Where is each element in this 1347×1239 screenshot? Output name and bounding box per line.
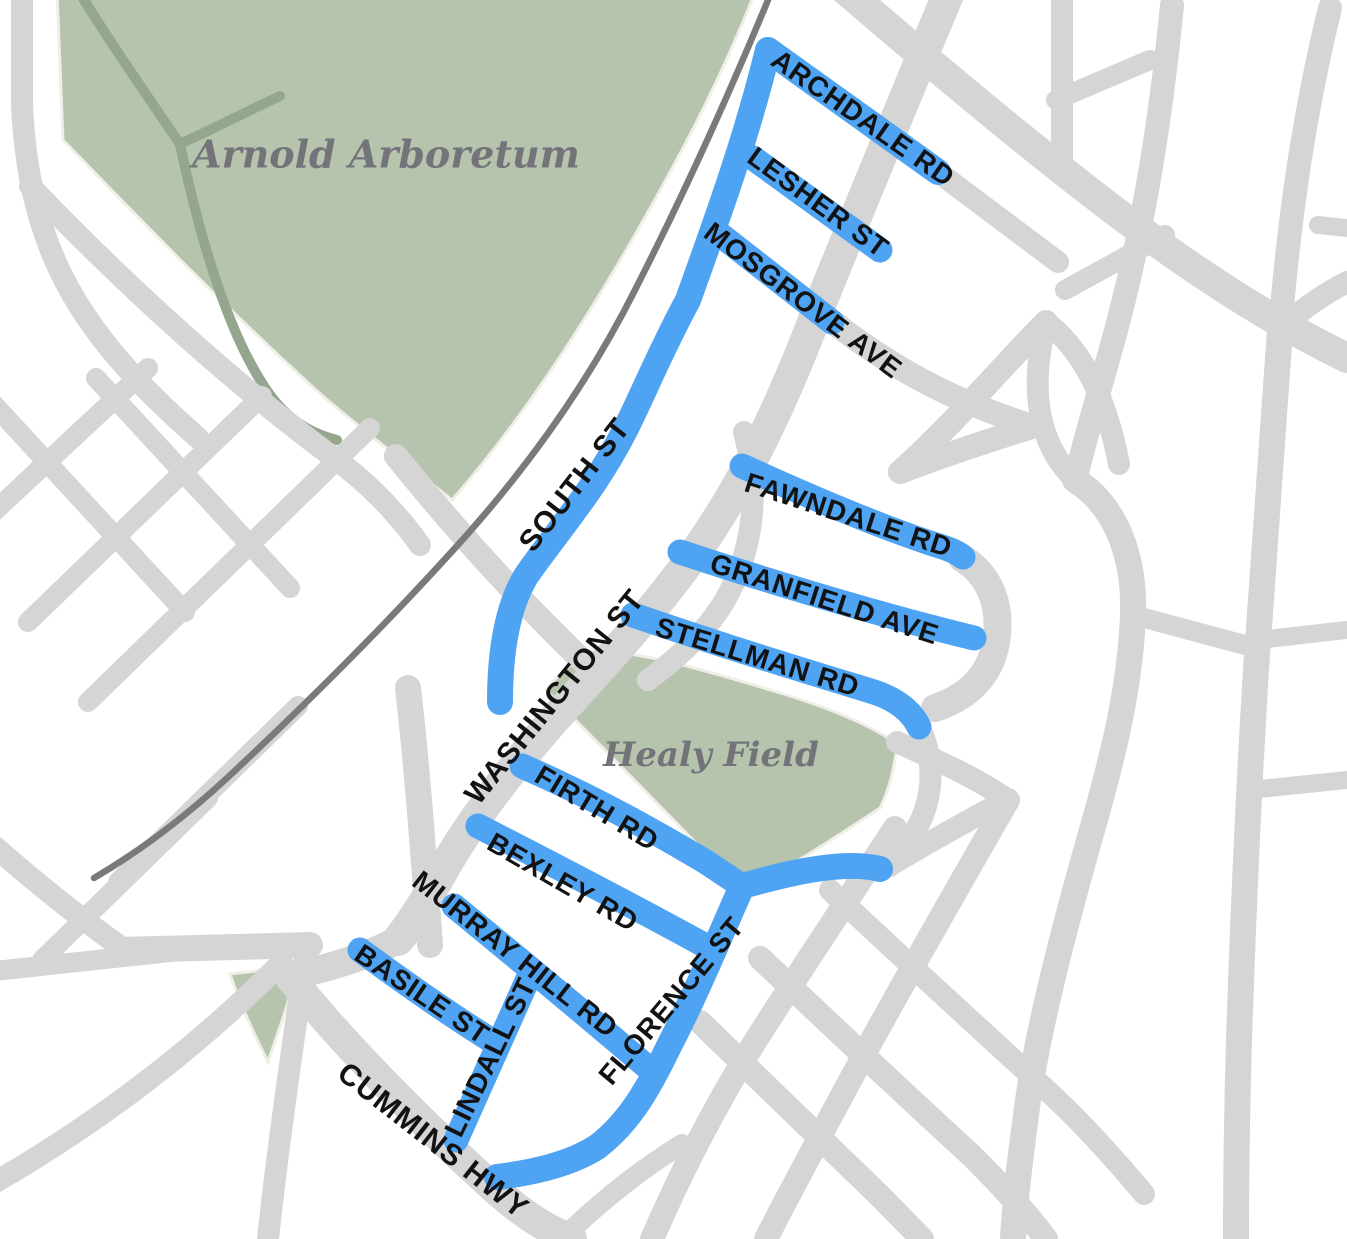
street-map: ARCHDALE RD LESHER ST MOSGROVE AVE SOUTH… [0, 0, 1347, 1239]
road [120, 945, 310, 950]
road [700, 1022, 922, 1239]
street-label-bexley-rd: BEXLEY RD [482, 827, 644, 938]
road [1280, 8, 1330, 330]
road [938, 172, 1058, 262]
road [897, 742, 1008, 800]
road [1065, 235, 1165, 290]
road [0, 962, 282, 1188]
street-label-cummins-hwy: CUMMINS HWY [331, 1056, 535, 1225]
street-label-fawndale-rd: FAWNDALE RD [741, 467, 956, 563]
park-label-healy-field: Healy Field [602, 735, 819, 775]
road [1133, 615, 1256, 648]
road [1250, 780, 1347, 790]
arnold-arboretum-area [57, 0, 755, 500]
map-canvas: ARCHDALE RD LESHER ST MOSGROVE AVE SOUTH… [0, 0, 1347, 1239]
road [1318, 225, 1347, 228]
park-label-arnold-arboretum: Arnold Arboretum [189, 132, 580, 177]
street-label-south-st: SOUTH ST [513, 412, 637, 558]
road [1258, 630, 1347, 640]
